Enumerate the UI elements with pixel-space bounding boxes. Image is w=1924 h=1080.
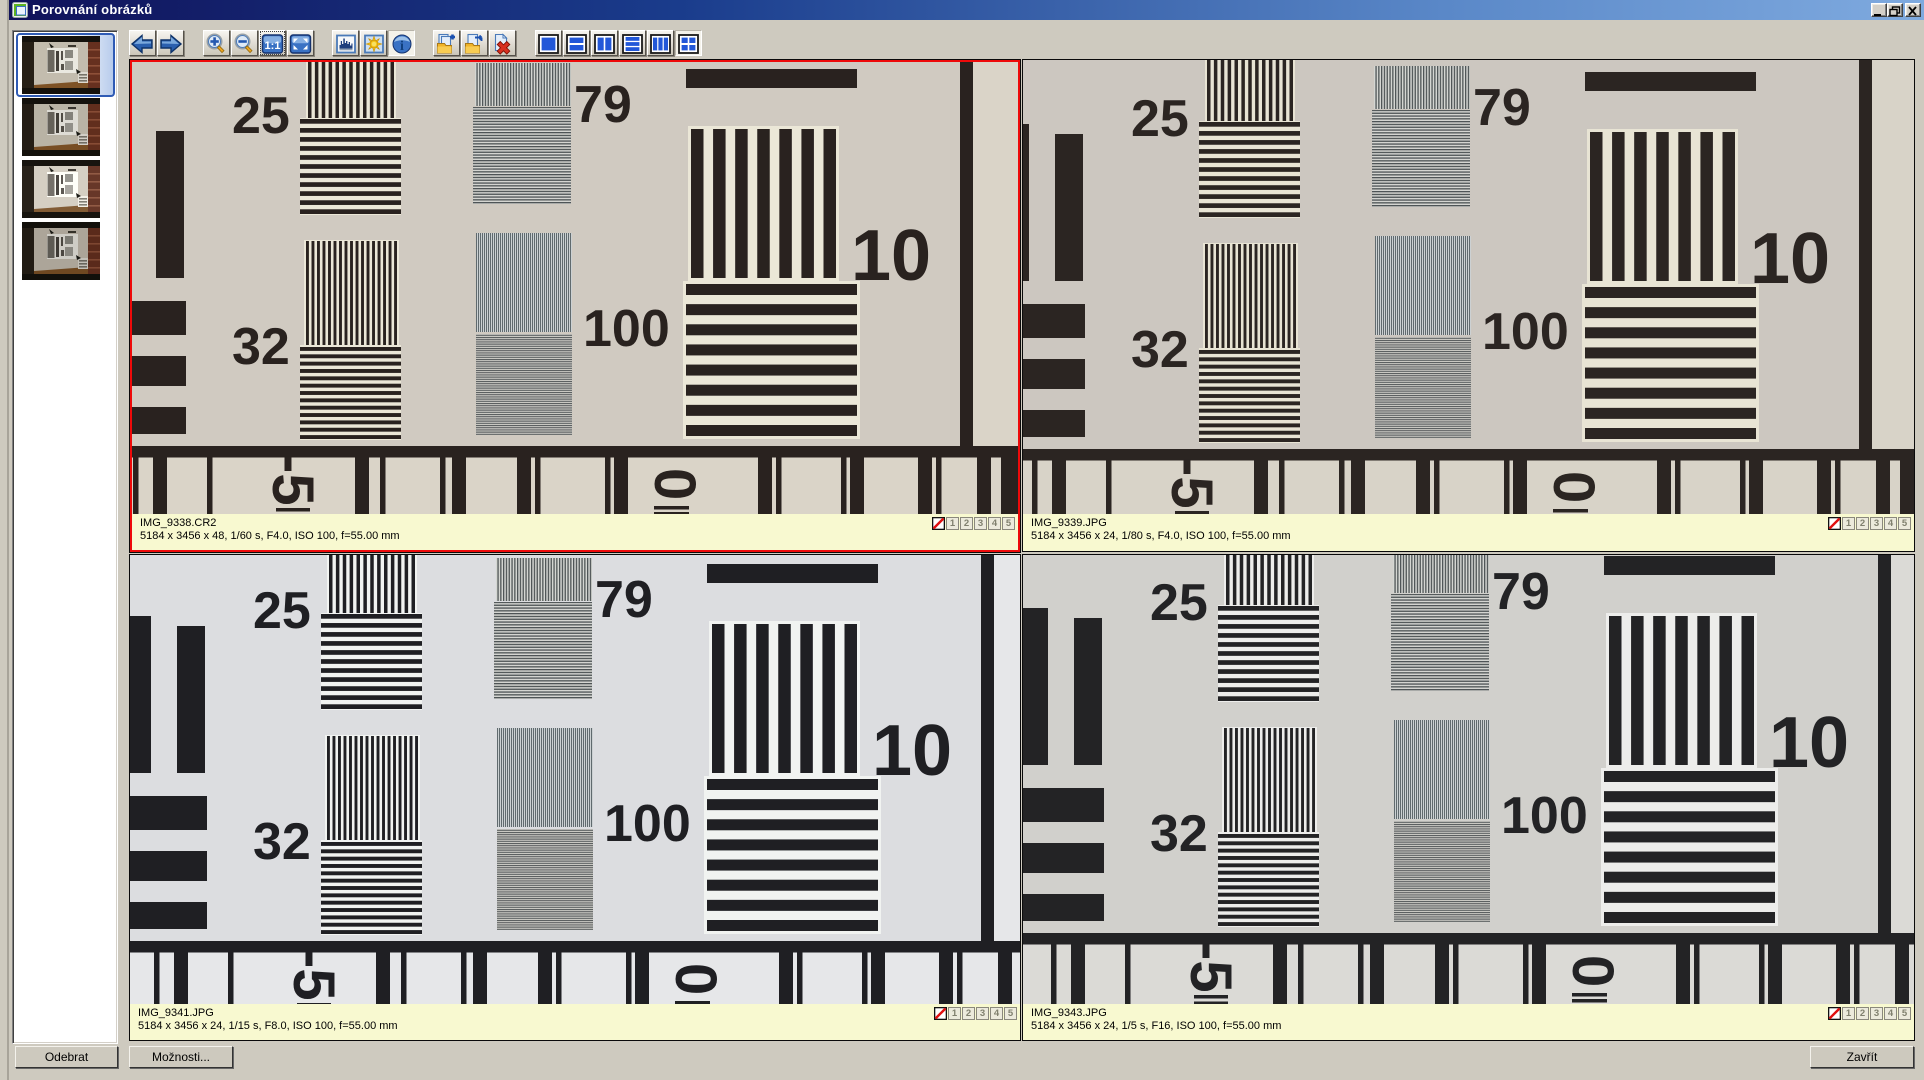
svg-text:i: i [400, 39, 404, 54]
svg-text:1:1: 1:1 [264, 40, 280, 52]
